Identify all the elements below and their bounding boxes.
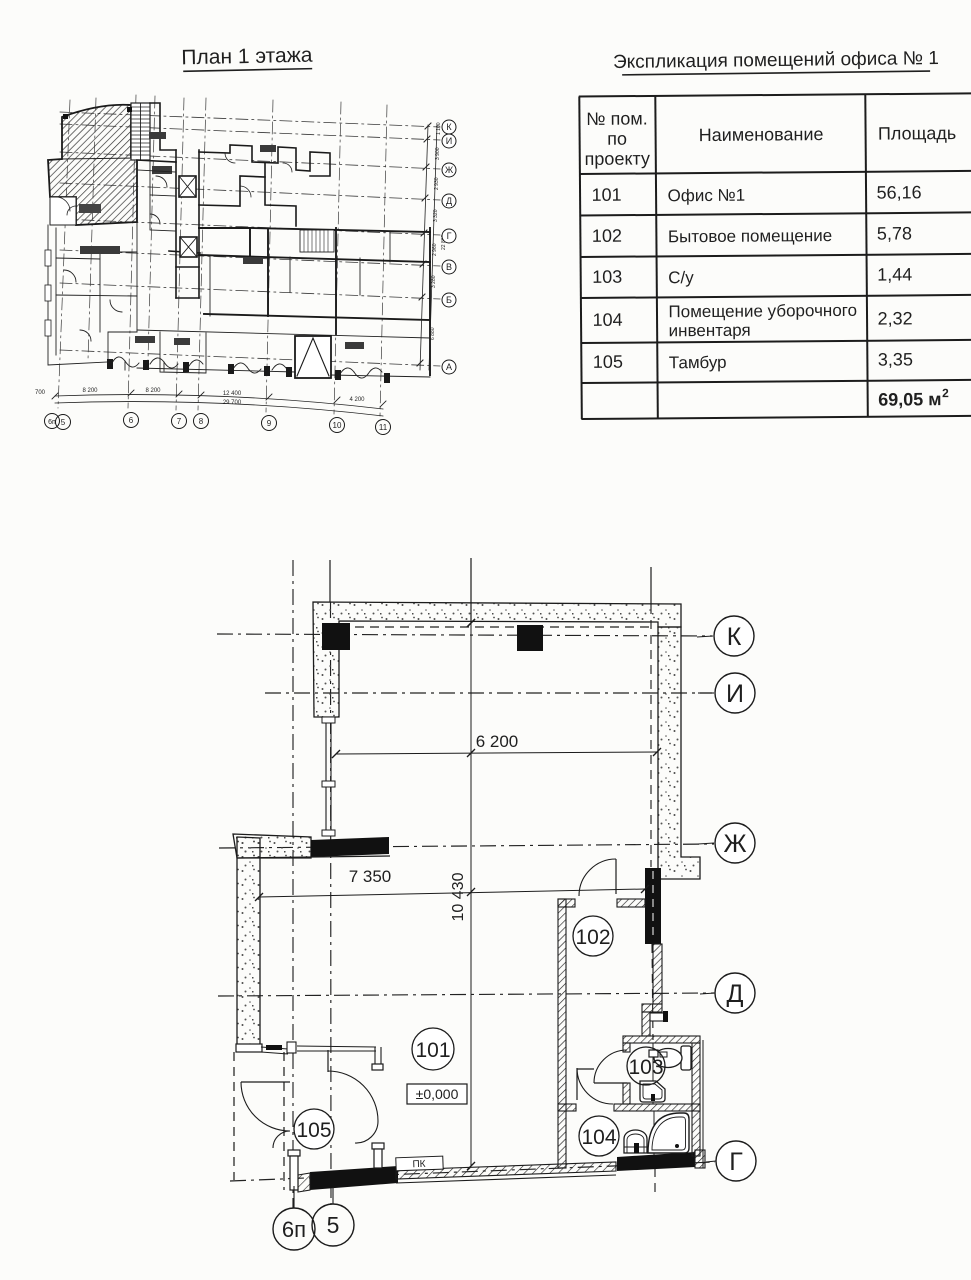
svg-text:56,16: 56,16	[876, 182, 921, 202]
svg-text:101: 101	[415, 1039, 450, 1062]
svg-text:К: К	[727, 623, 742, 651]
svg-text:10 430: 10 430	[450, 872, 467, 921]
svg-text:План 1 этажа: План 1 этажа	[181, 44, 313, 70]
svg-text:Тамбур: Тамбур	[669, 353, 727, 372]
svg-text:103: 103	[592, 267, 622, 287]
svg-text:103: 103	[628, 1056, 663, 1079]
svg-text:2 960: 2 960	[432, 243, 438, 256]
svg-text:Офис №1: Офис №1	[668, 186, 746, 206]
svg-text:10: 10	[333, 421, 342, 430]
svg-text:1 100: 1 100	[436, 122, 442, 135]
svg-text:7: 7	[177, 417, 182, 426]
svg-text:6: 6	[129, 416, 134, 425]
svg-text:700: 700	[35, 390, 46, 396]
svg-text:105: 105	[296, 1119, 331, 1142]
svg-text:1,44: 1,44	[877, 264, 912, 284]
svg-text:2 930: 2 930	[434, 177, 440, 190]
svg-text:104: 104	[592, 310, 622, 330]
svg-text:6п: 6п	[48, 419, 56, 426]
svg-text:2: 2	[942, 386, 949, 400]
svg-text:9: 9	[267, 419, 272, 428]
svg-text:11: 11	[379, 423, 388, 432]
svg-text:проекту: проекту	[585, 148, 650, 169]
svg-text:±0,000: ±0,000	[416, 1086, 459, 1102]
svg-text:3 900: 3 900	[435, 147, 441, 160]
svg-text:Д: Д	[727, 980, 744, 1008]
svg-text:102: 102	[592, 226, 622, 246]
svg-text:К: К	[446, 122, 452, 132]
svg-text:69,05 м: 69,05 м	[878, 389, 942, 409]
svg-text:А: А	[446, 362, 452, 372]
svg-text:8: 8	[199, 417, 204, 426]
svg-text:И: И	[726, 680, 744, 708]
svg-text:2,32: 2,32	[877, 308, 912, 328]
svg-text:3 320: 3 320	[433, 209, 439, 222]
svg-text:5: 5	[327, 1212, 340, 1238]
svg-text:29 700: 29 700	[223, 400, 242, 406]
svg-text:Б: Б	[446, 295, 452, 305]
svg-text:ПК: ПК	[412, 1159, 426, 1170]
svg-text:102: 102	[575, 926, 610, 949]
svg-text:Бытовое помещение: Бытовое помещение	[668, 226, 832, 246]
svg-text:5,78: 5,78	[877, 223, 912, 243]
svg-text:по: по	[607, 129, 627, 149]
svg-text:Помещение уборочного: Помещение уборочного	[668, 301, 857, 321]
svg-text:6 200: 6 200	[476, 732, 519, 751]
svg-text:5: 5	[61, 418, 66, 427]
svg-text:6п: 6п	[282, 1217, 306, 1242]
svg-text:Ж: Ж	[723, 830, 746, 858]
svg-text:И: И	[446, 136, 452, 146]
svg-text:104: 104	[581, 1126, 616, 1149]
svg-text:4 200: 4 200	[349, 397, 365, 403]
svg-text:12 400: 12 400	[223, 391, 242, 397]
svg-text:8 200: 8 200	[145, 388, 161, 394]
svg-text:Экспликация помещений офиса №: Экспликация помещений офиса № 1	[613, 48, 939, 73]
svg-text:Наименование: Наименование	[699, 124, 824, 145]
svg-text:3 280: 3 280	[431, 275, 437, 288]
svg-text:Ж: Ж	[445, 165, 454, 175]
svg-text:8 200: 8 200	[82, 388, 98, 394]
svg-text:Площадь: Площадь	[878, 123, 957, 144]
svg-text:С/у: С/у	[668, 268, 694, 287]
svg-text:Г: Г	[729, 1148, 743, 1176]
svg-text:101: 101	[591, 185, 621, 205]
svg-text:6 880: 6 880	[430, 327, 436, 340]
svg-text:№ пом.: № пом.	[586, 108, 648, 128]
svg-text:Д: Д	[446, 196, 452, 206]
svg-text:Г: Г	[447, 231, 452, 241]
svg-text:инвентаря: инвентаря	[669, 321, 751, 341]
svg-text:7 350: 7 350	[349, 867, 392, 886]
svg-text:3,35: 3,35	[878, 349, 913, 369]
svg-text:В: В	[446, 262, 452, 272]
svg-text:105: 105	[593, 352, 623, 372]
